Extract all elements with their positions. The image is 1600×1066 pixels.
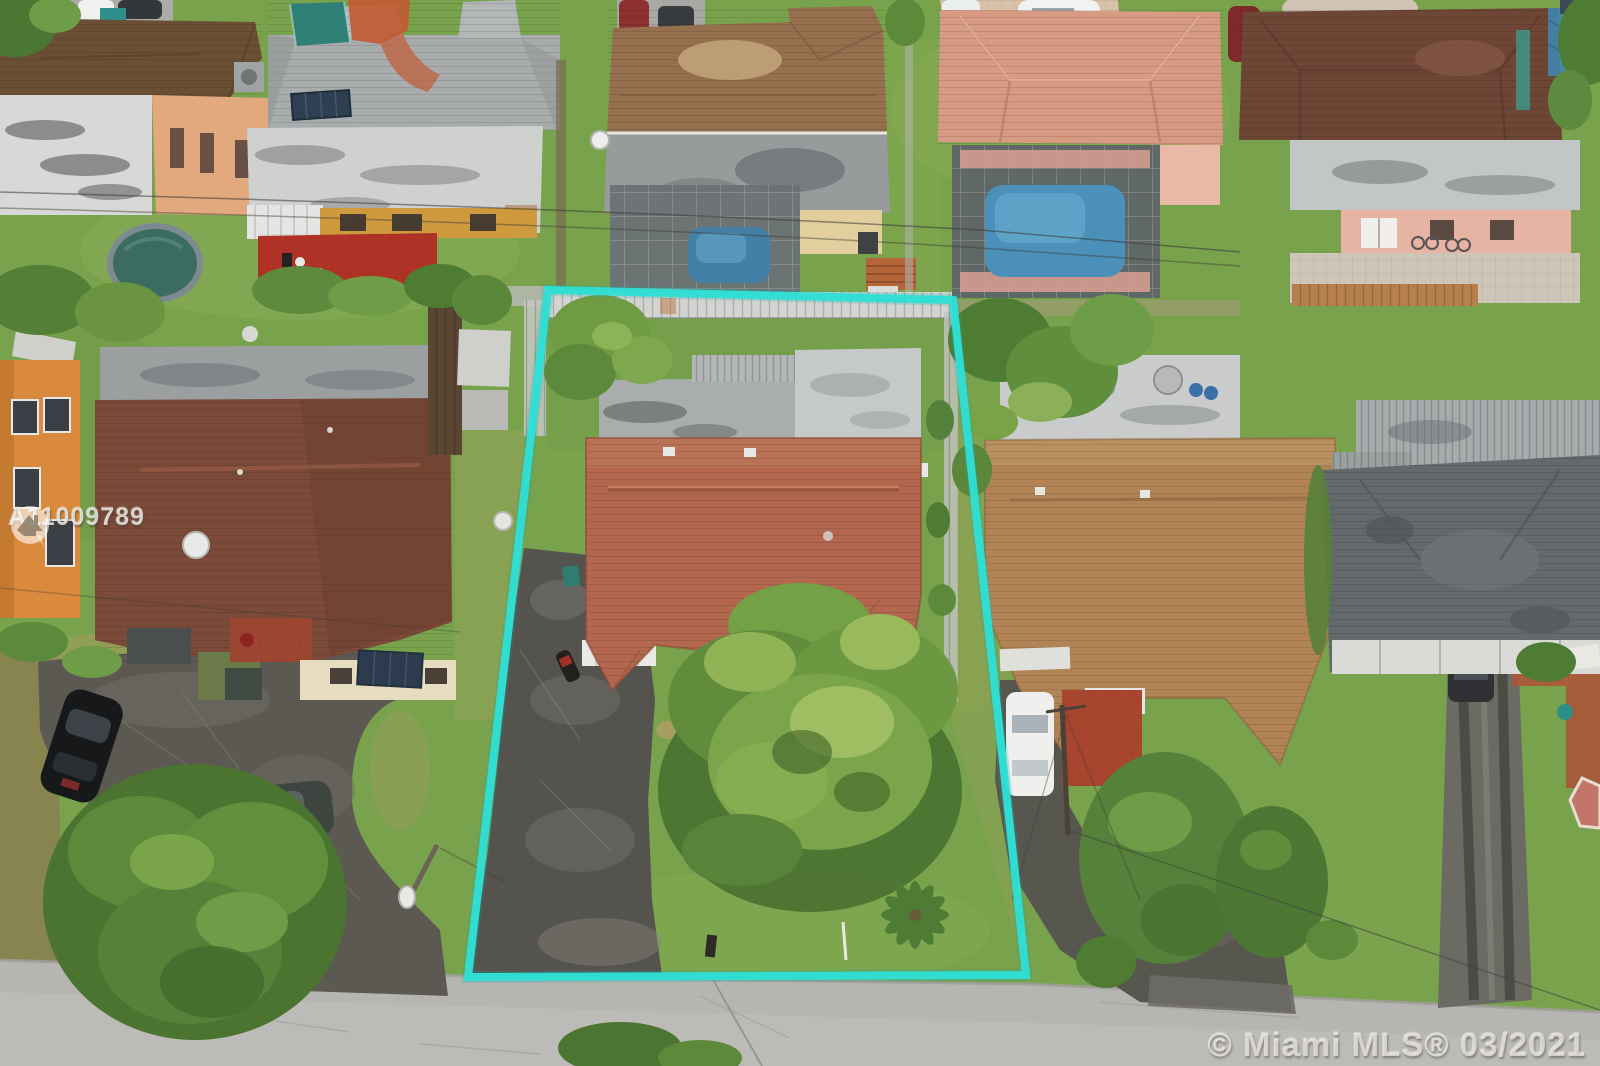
grill xyxy=(240,633,254,647)
satellite-dish xyxy=(494,512,512,530)
aerial-photo: A11009789 © Miami MLS® 03/2021 xyxy=(0,0,1600,1066)
orange-house xyxy=(0,330,80,618)
red-tile-patio xyxy=(230,618,312,662)
blue-barrel xyxy=(1189,383,1203,397)
carport-roof xyxy=(1000,647,1071,671)
fence-divider xyxy=(905,40,913,295)
fence-divider xyxy=(556,60,566,300)
satellite-dish xyxy=(183,532,209,558)
patio-table xyxy=(242,326,258,342)
solar-panel xyxy=(357,650,423,687)
canopy-tent xyxy=(290,2,350,46)
aerial-scene xyxy=(0,0,1600,1066)
ac-unit xyxy=(858,232,878,254)
left-neighbor-house xyxy=(95,345,456,700)
bottom-left-tree xyxy=(43,764,347,1040)
green-bin xyxy=(562,565,581,587)
patio-umbrella xyxy=(1154,366,1182,394)
hedge xyxy=(1304,465,1332,655)
blue-barrel xyxy=(1204,386,1218,400)
screened-pool xyxy=(610,185,800,300)
garage-roof xyxy=(127,628,191,664)
satellite-dish xyxy=(591,131,609,149)
screened-pool xyxy=(952,145,1160,298)
solar-panel xyxy=(291,90,351,120)
red-paver-patio xyxy=(1566,686,1600,788)
teal-barrel xyxy=(1557,704,1573,720)
